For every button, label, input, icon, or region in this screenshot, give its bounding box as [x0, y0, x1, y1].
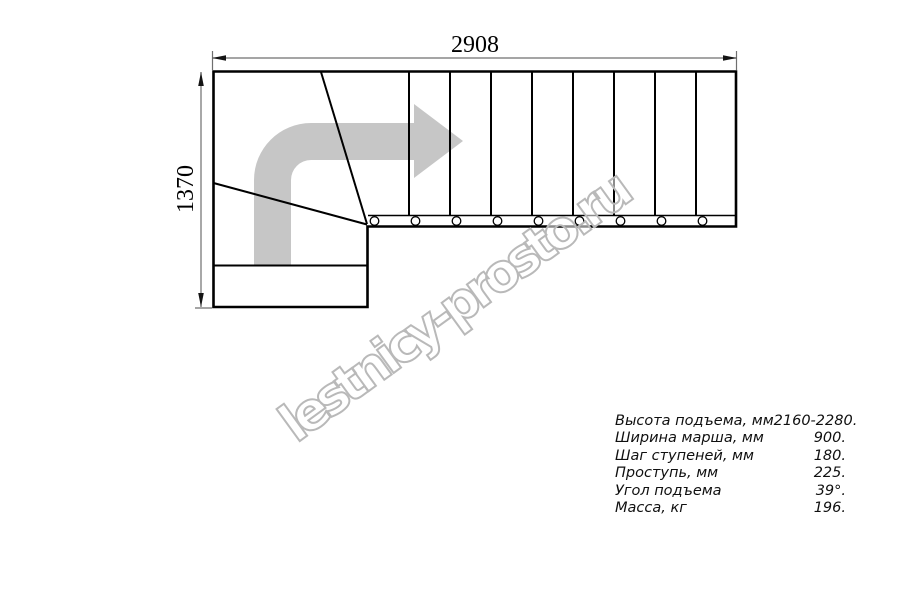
- direction-arrow-icon: [254, 104, 463, 265]
- spec-row-height: Высота подъема, мм 2160-2280.: [615, 413, 846, 430]
- left-dimension: 1370: [173, 72, 212, 308]
- spec-value: 2160-2280.: [774, 413, 858, 430]
- spec-label: Ширина марша, мм: [615, 430, 764, 447]
- dim-arrow-left-icon: [212, 55, 226, 61]
- spec-row-angle: Угол подъема 39°.: [615, 483, 846, 500]
- spec-row-mass: Масса, кг 196.: [615, 500, 846, 517]
- plan-outline: [214, 72, 737, 308]
- left-dimension-label: 1370: [173, 165, 199, 213]
- plan-linework: [214, 71, 737, 307]
- spec-label: Угол подъема: [615, 483, 722, 500]
- spec-table: Высота подъема, мм 2160-2280. Ширина мар…: [615, 413, 846, 517]
- spec-value: 196.: [814, 500, 846, 517]
- spec-label: Шаг ступеней, мм: [615, 448, 754, 465]
- spec-value: 900.: [814, 430, 846, 447]
- spec-row-width: Ширина марша, мм 900.: [615, 430, 846, 447]
- spec-label: Масса, кг: [615, 500, 687, 517]
- dim-arrow-up-icon: [198, 72, 204, 86]
- spec-value: 180.: [814, 448, 846, 465]
- top-dimension: 2908: [212, 32, 737, 70]
- spec-value: 225.: [814, 465, 846, 482]
- spec-label: Высота подъема, мм: [615, 413, 774, 430]
- stair-plan-page: 2908 1370 lestnicy-prosto.ru Высота подъ…: [0, 0, 900, 600]
- dim-arrow-right-icon: [723, 55, 737, 61]
- spec-label: Проступь, мм: [615, 465, 718, 482]
- spec-row-tread: Проступь, мм 225.: [615, 465, 846, 482]
- spec-row-step: Шаг ступеней, мм 180.: [615, 448, 846, 465]
- dim-arrow-down-icon: [198, 293, 204, 307]
- baluster-circles: [370, 217, 707, 226]
- top-dimension-label: 2908: [451, 32, 499, 58]
- spec-value: 39°.: [816, 483, 846, 500]
